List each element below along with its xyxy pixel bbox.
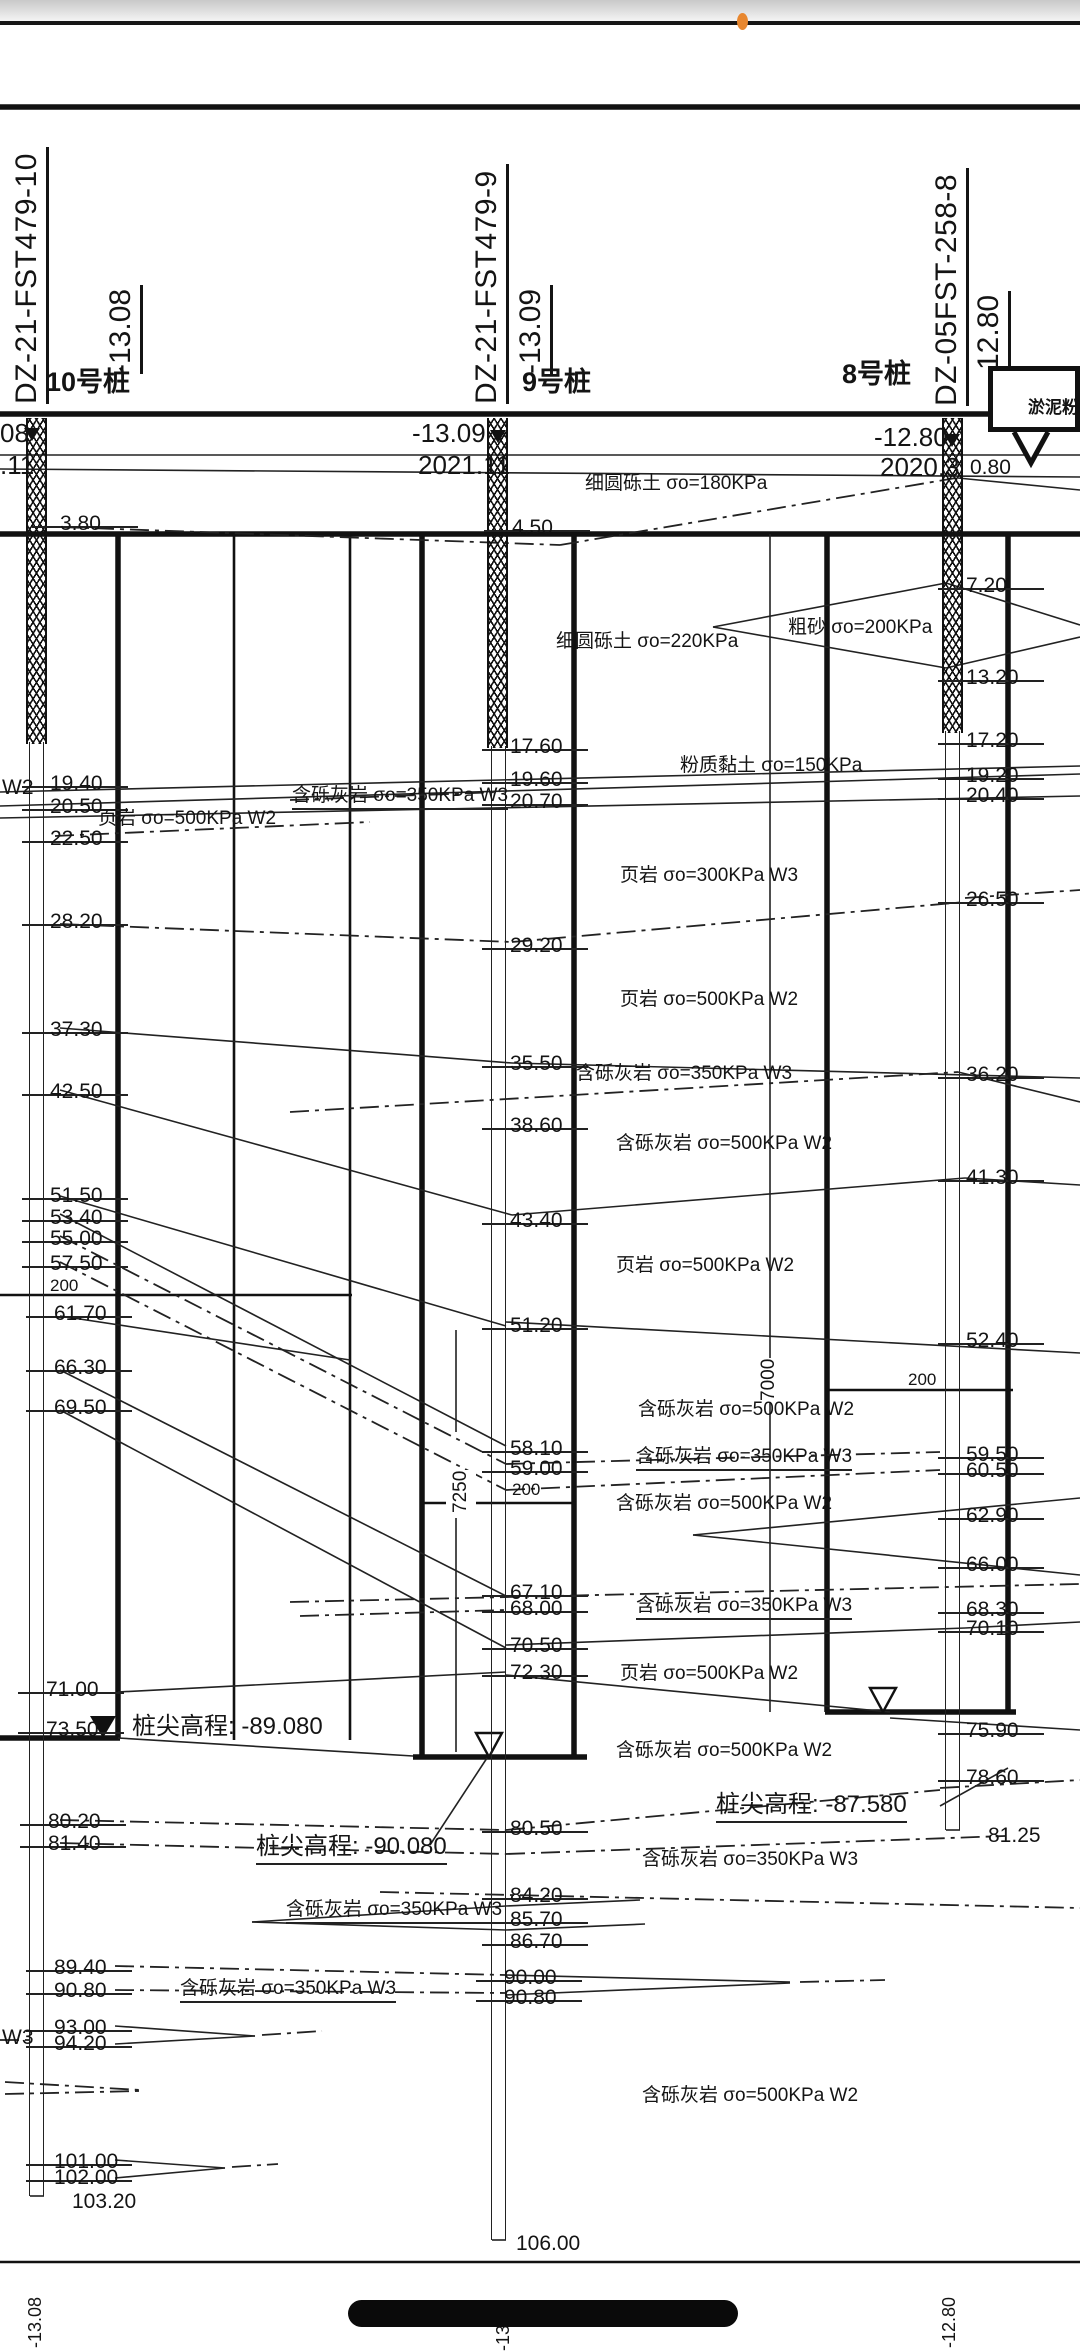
stratum-label: 含砾灰岩 σo=500KPa W2 [616, 1488, 832, 1515]
stratum-label: 页岩 σo=500KPa W2 [620, 984, 798, 1011]
pile-tip-note-10: 桩尖高程: -89.080 [132, 1706, 323, 1741]
stratum-label: 含砾灰岩 σo=500KPa W2 [642, 2080, 858, 2107]
depth-label: 66.00 [966, 1553, 1019, 1577]
depth-label: 57.50 [50, 1252, 103, 1276]
depth-label: 20.70 [510, 790, 563, 814]
depth-label: 80.20 [48, 1810, 101, 1834]
stratum-label: 细圆砾土 σo=180KPa [585, 468, 767, 495]
depth-label: W2 [2, 776, 34, 800]
depth-label: 13.20 [966, 666, 1019, 690]
depth-label: 20.40 [966, 784, 1019, 808]
depth-label: 26.50 [966, 888, 1019, 912]
stratum-label: 含砾灰岩 σo=350KPa W3 [180, 1973, 396, 2003]
pile-tip-note-9: 桩尖高程: -90.080 [256, 1826, 447, 1865]
depth-label: 69.50 [54, 1396, 107, 1420]
survey-date: 2020.3 [880, 452, 960, 483]
stratum-label: 含砾灰岩 σo=500KPa W2 [638, 1394, 854, 1421]
stratum-label: 含砾灰岩 σo=500KPa W2 [616, 1128, 832, 1155]
progress-dot-icon [737, 13, 748, 30]
pile-10-label: 10号桩 [46, 360, 130, 399]
depth-label: 78.60 [966, 1766, 1019, 1790]
depth-label: 35.50 [510, 1052, 563, 1076]
depth-label: 60.50 [966, 1459, 1019, 1483]
depth-label: 86.70 [510, 1930, 563, 1954]
borehole-8-column [945, 731, 960, 1830]
depth-label: 51.50 [50, 1184, 103, 1208]
stratum-label: 页岩 σo=300KPa W3 [620, 860, 798, 887]
depth-label: 90.80 [54, 1979, 107, 2003]
surface-elevation: -12.80 [874, 422, 948, 453]
stratum-label: 含砾灰岩 σo=350KPa W3 [292, 780, 508, 810]
stratum-label: 页岩 σo=500KPa W2 [616, 1250, 794, 1277]
depth-label: 70.50 [510, 1634, 563, 1658]
depth-label: 19.40 [50, 772, 103, 796]
callout-text: 淤泥粉 [1028, 393, 1079, 418]
depth-label: 103.20 [72, 2190, 136, 2214]
surface-elevation-clipped: 08 [0, 418, 29, 449]
depth-label: W3 [2, 2026, 34, 2050]
stratum-label: 含砾灰岩 σo=350KPa W3 [642, 1844, 858, 1871]
depth-label: 36.20 [966, 1063, 1019, 1087]
depth-label: 84.20 [510, 1884, 563, 1908]
depth-label: 38.60 [510, 1114, 563, 1138]
stratum-label: 细圆砾土 σo=220KPa [556, 626, 738, 653]
stratum-label: 粗砂 σo=200KPa [788, 612, 932, 639]
depth-label: 200 [50, 1276, 78, 1296]
bottom-elevation-10: -13.08 [24, 2297, 47, 2348]
depth-label: 59.00 [510, 1457, 563, 1481]
depth-label: 20.50 [50, 795, 103, 819]
depth-label: 70.10 [966, 1617, 1019, 1641]
depth-label: 17.60 [510, 735, 563, 759]
depth-label: 55.00 [50, 1227, 103, 1251]
depth-label: 51.20 [510, 1314, 563, 1338]
depth-label: 22.50 [50, 827, 103, 851]
depth-label: 37.30 [50, 1018, 103, 1042]
borehole-9-column [491, 746, 506, 2240]
depth-label: 4.50 [512, 516, 553, 540]
stratum-label: 含砾灰岩 σo=350KPa W3 [576, 1058, 792, 1085]
stratum-label: 含砾灰岩 σo=350KPa W3 [636, 1590, 852, 1620]
depth-label: 42.50 [50, 1080, 103, 1104]
depth-label: 3.80 [60, 512, 101, 536]
depth-label: 29.20 [510, 934, 563, 958]
borehole-9-id: DZ-21-FST479-9 [468, 164, 509, 404]
depth-label: 106.00 [516, 2232, 580, 2256]
depth-label: 68.00 [510, 1597, 563, 1621]
drawing-area[interactable]: DZ-21-FST479-10 -13.08 10号桩 DZ-21-FST479… [0, 0, 1080, 2336]
depth-label: 62.90 [966, 1504, 1019, 1528]
depth-label: 41.30 [966, 1166, 1019, 1190]
depth-label: 0.80 [970, 456, 1011, 480]
pile-9-label: 9号桩 [522, 360, 591, 399]
borehole-10-id: DZ-21-FST479-10 [8, 147, 49, 404]
socket-dimension-9: 7250 [446, 1470, 476, 1514]
depth-label: 72.30 [510, 1661, 563, 1685]
stratum-label: 粉质黏土 σo=150KPa [680, 750, 862, 777]
depth-label: 89.40 [54, 1956, 107, 1980]
stratum-label: 页岩 σo=500KPa W2 [620, 1658, 798, 1685]
depth-label: 81.40 [48, 1832, 101, 1856]
depth-label: 102.00 [54, 2166, 118, 2190]
callout-pointer-icon [1014, 432, 1048, 463]
depth-label: 200 [908, 1370, 936, 1390]
depth-label: 73.50 [46, 1718, 99, 1742]
stratum-label: 含砾灰岩 σo=350KPa W3 [636, 1441, 852, 1471]
callout-box: 淤泥粉 [988, 366, 1080, 432]
pile-8-label: 8号桩 [842, 352, 911, 391]
pile-tip-note-8: 桩尖高程: -87.580 [716, 1784, 907, 1823]
depth-label: 85.70 [510, 1908, 563, 1932]
stratum-label: 页岩 σo=500KPa W2 [98, 803, 276, 830]
survey-date: 2021.11 [418, 450, 510, 481]
depth-label: 28.20 [50, 910, 103, 934]
depth-label: 7.20 [966, 574, 1007, 598]
depth-label: 19.60 [510, 768, 563, 792]
gesture-handle[interactable] [348, 2300, 738, 2327]
depth-label: 52.40 [966, 1329, 1019, 1353]
survey-date-clipped: .11 [0, 450, 34, 481]
depth-label: 66.30 [54, 1356, 107, 1380]
pile-tip-marker-icon [870, 1688, 896, 1712]
borehole-8-id: DZ-05FST-258-8 [928, 168, 969, 406]
depth-label: 90.80 [504, 1986, 557, 2010]
stratum-label: 含砾灰岩 σo=500KPa W2 [616, 1735, 832, 1762]
depth-label: 200 [512, 1480, 540, 1500]
depth-label: 81.25 [988, 1824, 1041, 1848]
stratum-label: 含砾灰岩 σo=350KPa W3 [286, 1894, 502, 1924]
depth-label: 94.20 [54, 2032, 107, 2056]
surface-elevation: -13.09 [412, 418, 486, 449]
borehole-10-column [29, 742, 44, 2196]
depth-label: 71.00 [46, 1678, 99, 1702]
depth-label: 17.20 [966, 729, 1019, 753]
depth-label: 80.50 [510, 1817, 563, 1841]
depth-label: 61.70 [54, 1302, 107, 1326]
depth-label: 75.90 [966, 1719, 1019, 1743]
bottom-elevation-8: -12.80 [938, 2297, 961, 2348]
depth-label: 43.40 [510, 1209, 563, 1233]
